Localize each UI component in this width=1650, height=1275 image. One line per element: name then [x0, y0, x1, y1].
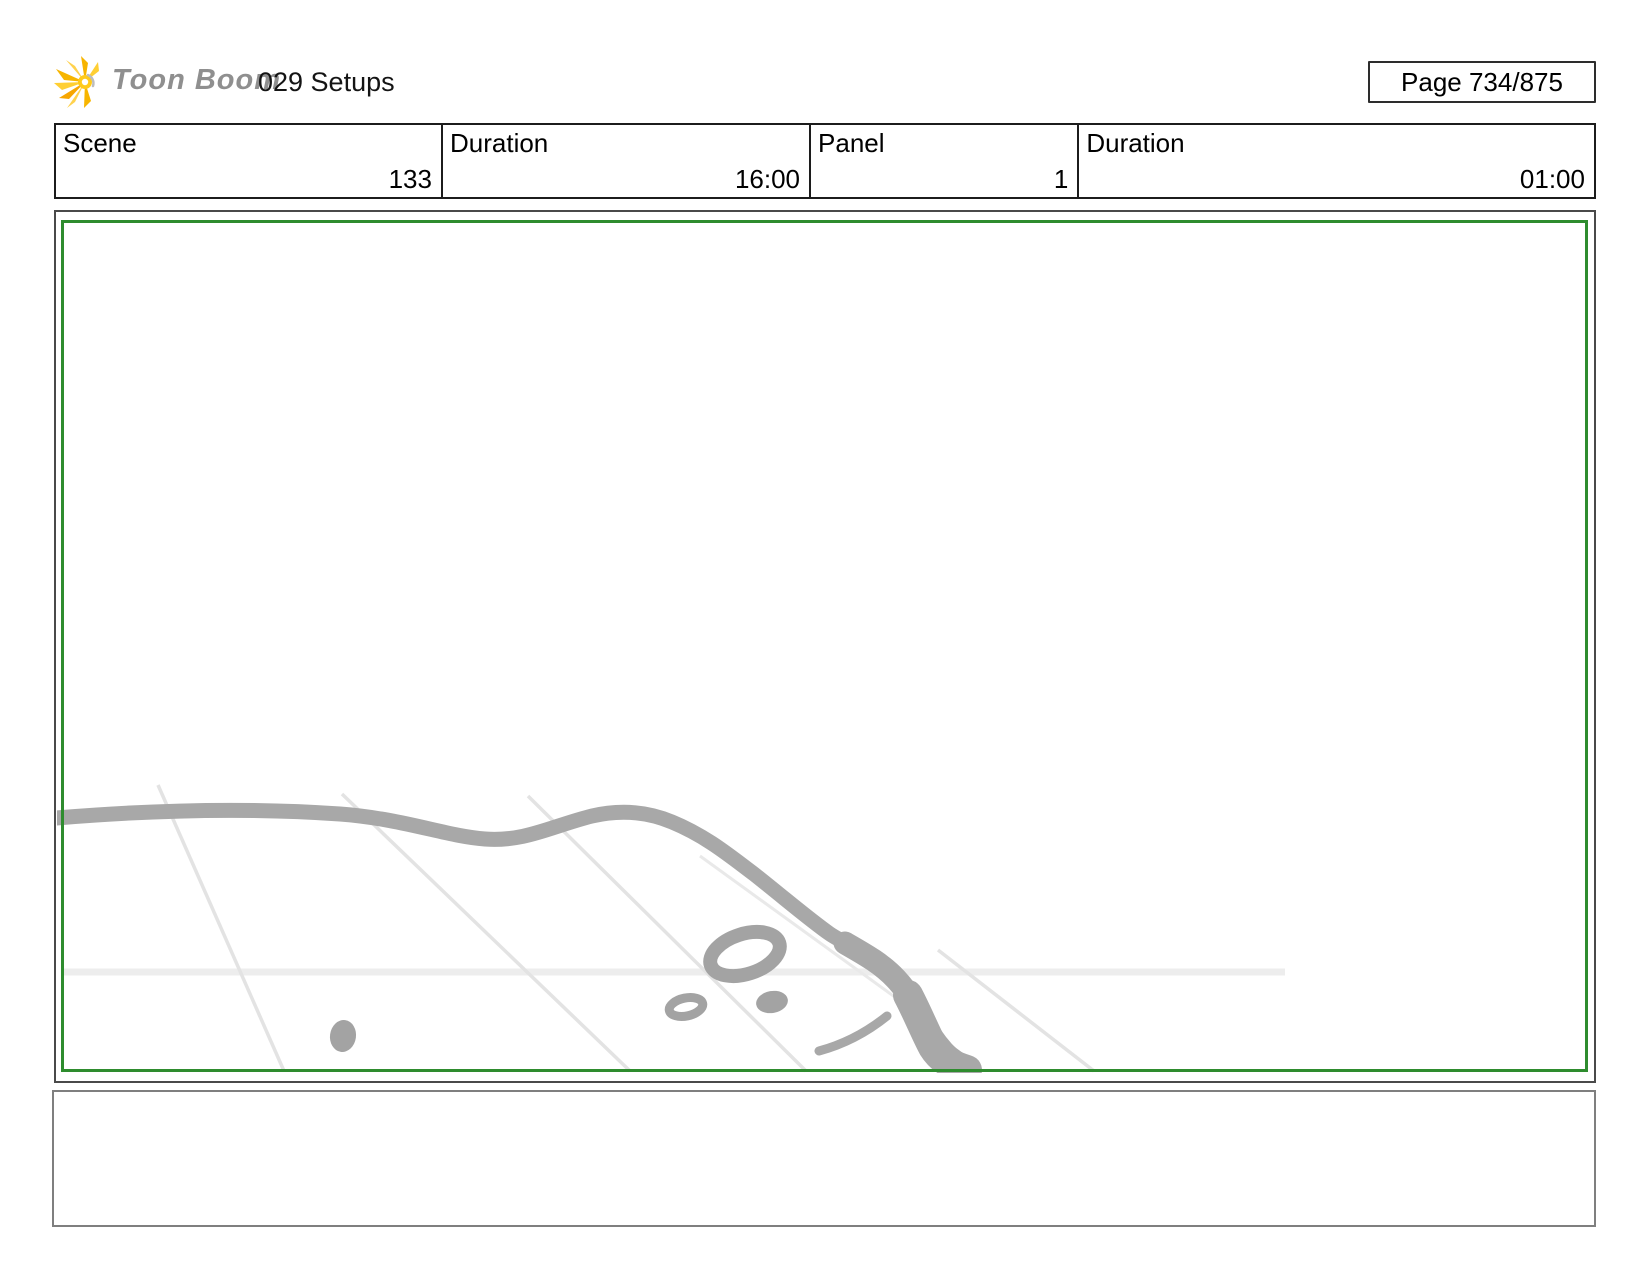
- panel-number-label: Panel: [818, 128, 885, 159]
- panel-duration-value: 01:00: [1520, 164, 1585, 195]
- left-dot: [328, 1018, 358, 1053]
- header: Toon Boom 029 Setups Page 734/875: [0, 0, 1650, 120]
- panel-duration-label: Duration: [1086, 128, 1184, 159]
- panel-number-value: 1: [1054, 164, 1068, 195]
- scene-duration-label: Duration: [450, 128, 548, 159]
- caption-box: [52, 1090, 1596, 1227]
- camera-frame-border: [63, 222, 1587, 1071]
- sketch-outline: [56, 810, 970, 1070]
- page-number-box: Page 734/875: [1368, 61, 1596, 103]
- small-ring: [668, 995, 705, 1020]
- small-dot: [754, 988, 789, 1015]
- panel-info-table: Scene 133 Duration 16:00 Panel 1 Duratio…: [54, 123, 1596, 199]
- scene-duration-cell: Duration 16:00: [441, 125, 809, 197]
- panel-duration-cell: Duration 01:00: [1077, 125, 1594, 197]
- panel-number-cell: Panel 1: [809, 125, 1077, 197]
- toonboom-sun-icon: [54, 56, 106, 110]
- storyboard-pdf-page: { "header": { "brand": "Toon Boom", "tit…: [0, 0, 1650, 1275]
- scene-cell: Scene 133: [56, 125, 441, 197]
- scene-label: Scene: [63, 128, 137, 159]
- page-number-label: Page 734/875: [1401, 67, 1563, 98]
- scene-value: 133: [389, 164, 432, 195]
- brand-logo-text: Toon Boom: [112, 64, 281, 97]
- document-title: 029 Setups: [258, 67, 395, 98]
- scene-duration-value: 16:00: [735, 164, 800, 195]
- storyboard-panel-drawing: [54, 210, 1596, 1083]
